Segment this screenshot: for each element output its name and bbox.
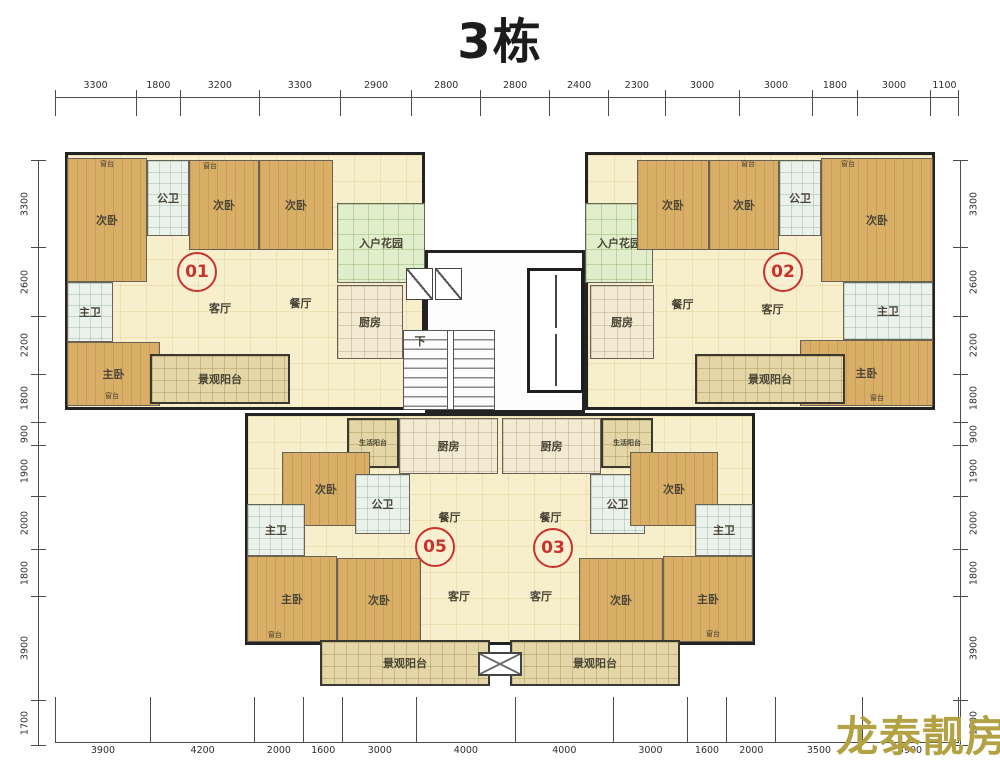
dim-tick	[55, 90, 56, 116]
room-xbox	[435, 268, 462, 300]
dim-value: 2600	[20, 270, 31, 294]
room-label: 主卧	[856, 365, 878, 381]
dim-tick	[726, 697, 727, 743]
room-label: 景观阳台	[748, 371, 792, 387]
room-wood: 次卧	[821, 158, 933, 282]
dim-tick	[31, 596, 46, 597]
dim-tick	[31, 745, 46, 746]
small-label: 窗台	[841, 159, 855, 169]
elevator-cab	[555, 334, 557, 387]
room-label: 厨房	[611, 314, 633, 330]
dim-value: 3000	[690, 80, 714, 91]
dim-tick	[930, 90, 931, 116]
dim-tick	[342, 697, 343, 743]
dim-tick	[953, 374, 968, 375]
room-label: 主卧	[697, 591, 719, 607]
dim-value: 3300	[288, 80, 312, 91]
dim-tick	[303, 697, 304, 743]
small-label: 窗台	[870, 393, 884, 403]
room-label: 主卫	[713, 522, 735, 538]
room-kitchen: 厨房	[399, 418, 498, 474]
room-bath: 主卫	[67, 282, 113, 342]
dim-value: 2000	[20, 511, 31, 535]
room-wood: 次卧	[67, 158, 147, 282]
room-label: 景观阳台	[383, 655, 427, 671]
dim-tick	[953, 700, 968, 701]
room-wood: 次卧	[637, 160, 709, 250]
room-label: 厨房	[359, 314, 381, 330]
dim-value: 1100	[932, 80, 956, 91]
dim-value: 2300	[625, 80, 649, 91]
dim-tick	[857, 90, 858, 116]
unit-badge-03: 03	[533, 528, 573, 568]
room-area: 餐厅	[268, 255, 333, 350]
dim-tick	[953, 160, 968, 161]
room-label: 次卧	[315, 481, 337, 497]
dim-value: 1800	[969, 386, 980, 410]
dim-value: 3300	[969, 192, 980, 216]
room-label: 餐厅	[540, 509, 562, 525]
room-label: 公卫	[607, 496, 629, 512]
small-label: 窗台	[741, 159, 755, 169]
room-wood: 主卧	[247, 556, 337, 642]
room-balcony: 景观阳台	[150, 354, 290, 404]
dim-value: 3900	[969, 636, 980, 660]
dim-value: 2400	[567, 80, 591, 91]
dim-value: 3000	[368, 745, 392, 756]
dim-tick	[259, 90, 260, 116]
room-label: 次卧	[733, 197, 755, 213]
room-label: 次卧	[213, 197, 235, 213]
dim-value: 1700	[20, 710, 31, 734]
dim-tick	[953, 422, 968, 423]
dim-tick	[775, 697, 776, 743]
unit-badge-01: 01	[177, 252, 217, 292]
room-label: 公卫	[789, 190, 811, 206]
dim-rail-line	[55, 742, 958, 743]
room-label: 次卧	[368, 592, 390, 608]
dim-value: 3300	[84, 80, 108, 91]
dim-tick	[136, 90, 137, 116]
dim-value: 2800	[503, 80, 527, 91]
room-label: 客厅	[530, 588, 552, 604]
dim-tick	[608, 90, 609, 116]
dim-value: 3900	[91, 745, 115, 756]
small-label: 窗台	[268, 630, 282, 640]
room-bath: 主卫	[695, 504, 753, 556]
room-label: 公卫	[372, 496, 394, 512]
room-elevator	[527, 268, 584, 393]
room-label: 生活阳台	[613, 438, 641, 448]
room-label: 入户花园	[359, 235, 403, 251]
room-label: 次卧	[663, 481, 685, 497]
dim-tick	[31, 496, 46, 497]
dim-tick	[515, 697, 516, 743]
room-wood: 次卧	[259, 160, 333, 250]
room-bath: 主卫	[843, 282, 933, 340]
room-balcony: 景观阳台	[510, 640, 680, 686]
dim-value: 1800	[969, 561, 980, 585]
dim-tick	[812, 90, 813, 116]
room-bath: 公卫	[147, 160, 189, 236]
dim-tick	[150, 697, 151, 743]
dim-value: 2200	[20, 333, 31, 357]
room-wood: 次卧	[579, 558, 663, 642]
room-label: 客厅	[209, 300, 231, 316]
small-label: 窗台	[105, 391, 119, 401]
dim-value: 4000	[454, 745, 478, 756]
room-label: 次卧	[610, 592, 632, 608]
room-wood: 次卧	[337, 558, 421, 642]
dim-value: 3000	[638, 745, 662, 756]
small-label: 下	[415, 333, 426, 349]
dim-value: 1600	[311, 745, 335, 756]
room-area: 餐厅	[640, 258, 725, 350]
room-label: 次卧	[96, 212, 118, 228]
dim-tick	[411, 90, 412, 116]
room-bath: 主卫	[247, 504, 305, 556]
dim-value: 3500	[807, 745, 831, 756]
room-label: 餐厅	[290, 295, 312, 311]
room-label: 厨房	[438, 438, 460, 454]
room-label: 生活阳台	[359, 438, 387, 448]
dim-tick	[55, 697, 56, 743]
dim-tick	[31, 445, 46, 446]
dim-tick	[549, 90, 550, 116]
room-label: 入户花园	[597, 235, 641, 251]
room-label: 次卧	[662, 197, 684, 213]
dim-value: 1900	[20, 459, 31, 483]
room-label: 公卫	[157, 190, 179, 206]
elevator-cab	[555, 275, 557, 328]
page-title: 3栋	[0, 2, 1000, 72]
room-label: 主卫	[79, 304, 101, 320]
room-wood: 次卧	[709, 160, 779, 250]
dim-value: 2000	[739, 745, 763, 756]
room-bath: 公卫	[355, 474, 410, 534]
dim-value: 3900	[20, 636, 31, 660]
dim-tick	[953, 596, 968, 597]
dim-value: 2900	[364, 80, 388, 91]
dim-value: 2200	[969, 333, 980, 357]
room-kitchen: 厨房	[502, 418, 601, 474]
dim-tick	[31, 422, 46, 423]
floorplan-canvas: 3栋 次卧公卫次卧次卧主卫主卧客厅餐厅景观阳台入户花园厨房入户花园厨房次卧次卧公…	[0, 0, 1000, 764]
dim-tick	[31, 160, 46, 161]
dim-tick	[31, 247, 46, 248]
dim-value: 1900	[969, 459, 980, 483]
dim-tick	[254, 697, 255, 743]
room-label: 景观阳台	[198, 371, 242, 387]
dim-value: 1600	[695, 745, 719, 756]
dim-tick	[31, 374, 46, 375]
dim-value: 3000	[882, 80, 906, 91]
dim-value: 900	[969, 425, 980, 443]
dim-value: 4200	[191, 745, 215, 756]
room-label: 次卧	[866, 212, 888, 228]
dim-tick	[31, 316, 46, 317]
dim-tick	[953, 496, 968, 497]
room-balcony: 景观阳台	[320, 640, 490, 686]
unit-badge-05: 05	[415, 527, 455, 567]
dim-value: 2000	[969, 511, 980, 535]
dim-value: 3200	[208, 80, 232, 91]
dim-rail-line	[55, 97, 958, 98]
room-area: 客厅	[502, 562, 580, 630]
room-label: 餐厅	[439, 509, 461, 525]
dim-value: 1800	[20, 561, 31, 585]
dim-tick	[416, 697, 417, 743]
room-area: 客厅	[420, 562, 498, 630]
dim-value: 1800	[20, 386, 31, 410]
small-label: 窗台	[100, 159, 114, 169]
room-label: 主卧	[281, 591, 303, 607]
dim-tick	[739, 90, 740, 116]
small-label: 窗台	[203, 161, 217, 171]
dim-value: 3300	[20, 192, 31, 216]
room-wood: 次卧	[189, 160, 259, 250]
room-label: 客厅	[762, 301, 784, 317]
dim-tick	[31, 549, 46, 550]
dim-value: 2600	[969, 270, 980, 294]
dim-tick	[180, 90, 181, 116]
dim-tick	[31, 700, 46, 701]
dim-tick	[953, 316, 968, 317]
room-label: 景观阳台	[573, 655, 617, 671]
dim-tick	[953, 549, 968, 550]
small-label: 窗台	[706, 629, 720, 639]
dim-tick	[665, 90, 666, 116]
dim-tick	[687, 697, 688, 743]
room-label: 次卧	[285, 197, 307, 213]
dim-tick	[480, 90, 481, 116]
dim-value: 1800	[823, 80, 847, 91]
room-label: 厨房	[541, 438, 563, 454]
dim-tick	[953, 445, 968, 446]
dim-value: 4000	[552, 745, 576, 756]
dim-tick	[958, 90, 959, 116]
room-xbox	[406, 268, 433, 300]
dim-tick	[340, 90, 341, 116]
dim-value: 3000	[764, 80, 788, 91]
room-label: 客厅	[448, 588, 470, 604]
watermark: 龙泰靓房	[836, 703, 1000, 764]
dim-value: 900	[20, 425, 31, 443]
room-connector	[478, 652, 522, 676]
room-bath: 公卫	[779, 160, 821, 236]
room-label: 主卫	[265, 522, 287, 538]
dim-tick	[953, 247, 968, 248]
room-label: 主卧	[103, 366, 125, 382]
room-label: 餐厅	[672, 296, 694, 312]
dim-value: 2800	[434, 80, 458, 91]
room-kitchen: 厨房	[337, 285, 403, 359]
dim-tick	[613, 697, 614, 743]
unit-badge-02: 02	[763, 252, 803, 292]
room-label: 主卫	[877, 303, 899, 319]
room-balcony: 景观阳台	[695, 354, 845, 404]
dim-value: 2000	[267, 745, 291, 756]
dim-value: 1800	[146, 80, 170, 91]
